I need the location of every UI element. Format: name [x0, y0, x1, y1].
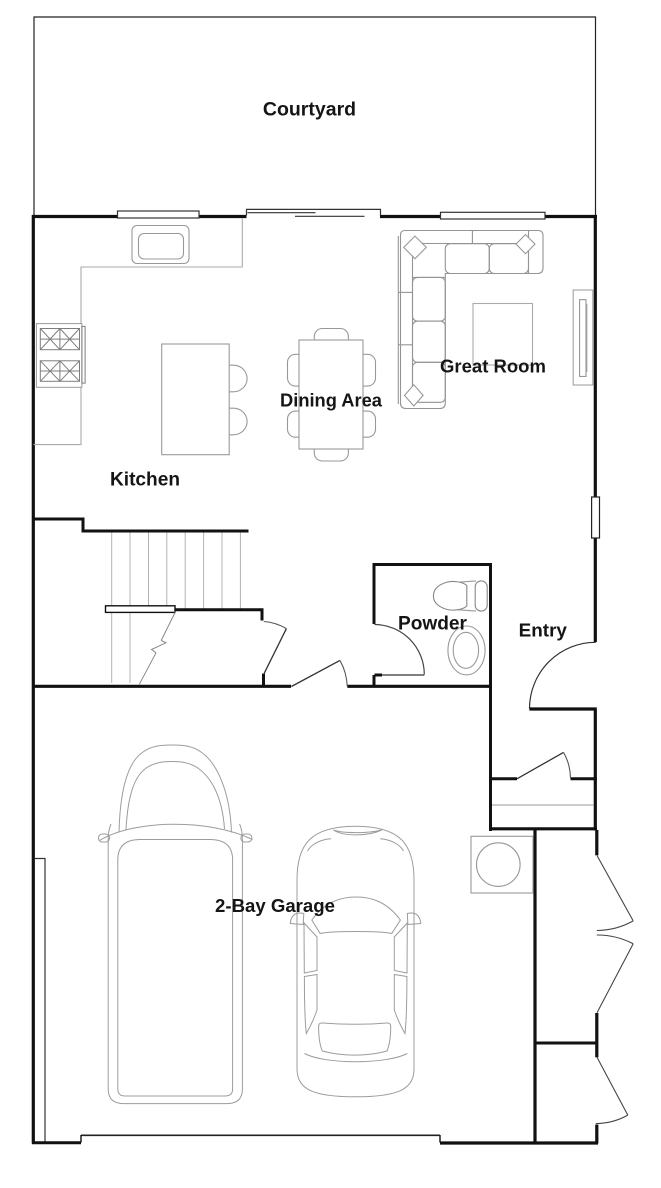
svg-text:2-Bay Garage: 2-Bay Garage	[215, 895, 335, 916]
svg-text:Powder: Powder	[398, 614, 468, 635]
svg-text:Courtyard: Courtyard	[263, 99, 356, 121]
svg-text:Entry: Entry	[519, 621, 568, 642]
svg-text:Great Room: Great Room	[440, 356, 546, 377]
svg-text:Kitchen: Kitchen	[110, 470, 180, 491]
svg-text:Dining Area: Dining Area	[280, 390, 383, 411]
